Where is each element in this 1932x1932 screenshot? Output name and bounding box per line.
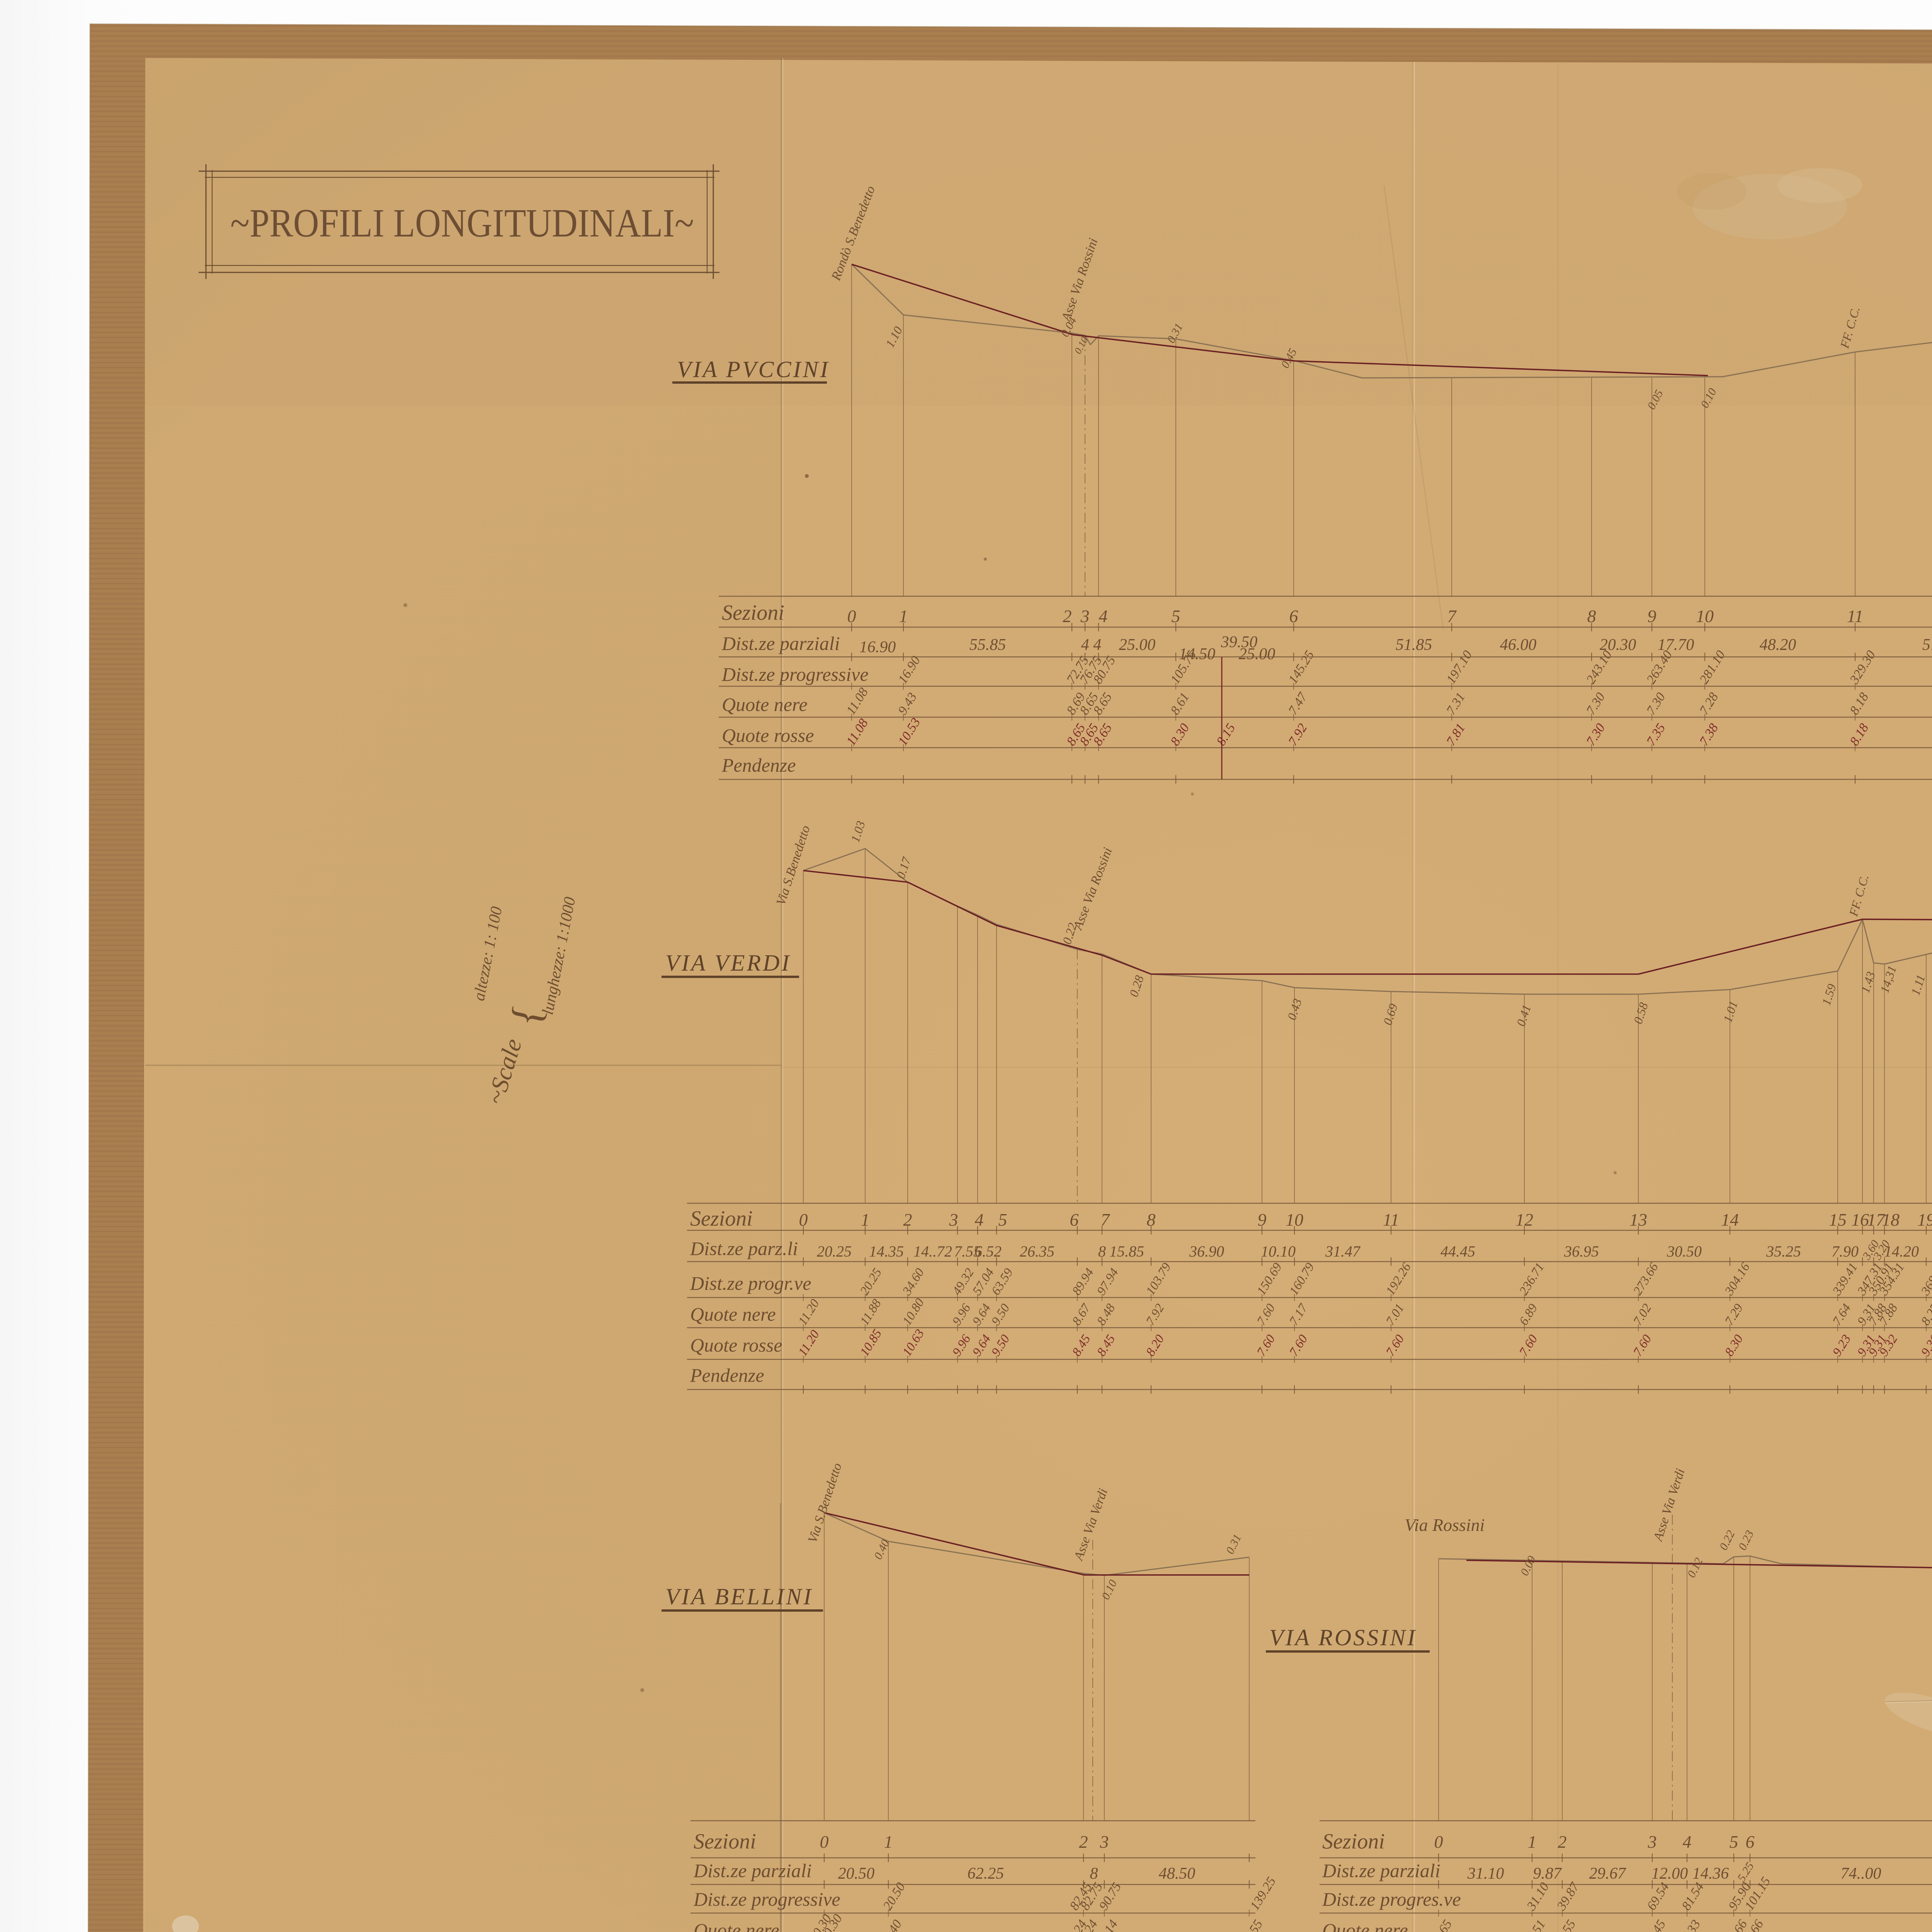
svg-text:Quote nere: Quote nere bbox=[722, 694, 808, 715]
svg-text:VIA BELLINI: VIA BELLINI bbox=[665, 1584, 813, 1609]
svg-text:Sezioni: Sezioni bbox=[722, 601, 784, 625]
svg-text:15: 15 bbox=[1829, 1210, 1847, 1230]
svg-text:4 4: 4 4 bbox=[1081, 636, 1102, 654]
svg-text:8: 8 bbox=[1090, 1865, 1098, 1883]
svg-text:2: 2 bbox=[1063, 606, 1072, 626]
svg-text:15.85: 15.85 bbox=[1109, 1243, 1144, 1260]
svg-text:2: 2 bbox=[1079, 1832, 1088, 1852]
svg-text:8: 8 bbox=[1587, 606, 1596, 626]
svg-text:36.90: 36.90 bbox=[1189, 1243, 1224, 1260]
svg-text:51.85: 51.85 bbox=[1396, 636, 1432, 654]
svg-text:5: 5 bbox=[998, 1210, 1007, 1230]
svg-text:Sezioni: Sezioni bbox=[694, 1830, 756, 1854]
svg-text:25.00: 25.00 bbox=[1119, 636, 1156, 654]
svg-text:Dist.ze progres.ve: Dist.ze progres.ve bbox=[1322, 1888, 1461, 1910]
svg-text:10: 10 bbox=[1286, 1210, 1303, 1230]
svg-text:0: 0 bbox=[847, 606, 856, 626]
svg-text:6.52: 6.52 bbox=[975, 1243, 1002, 1260]
svg-text:14..72: 14..72 bbox=[913, 1243, 952, 1260]
svg-text:35.25: 35.25 bbox=[1766, 1243, 1801, 1260]
svg-text:14: 14 bbox=[1721, 1210, 1739, 1230]
svg-text:12.00: 12.00 bbox=[1651, 1865, 1688, 1883]
svg-text:VIA VERDI: VIA VERDI bbox=[665, 950, 791, 976]
svg-text:VIA PVCCINI: VIA PVCCINI bbox=[677, 357, 830, 382]
svg-text:Pendenze: Pendenze bbox=[690, 1364, 764, 1386]
svg-text:1: 1 bbox=[861, 1210, 870, 1230]
svg-text:55.85: 55.85 bbox=[969, 636, 1006, 654]
svg-text:7.90: 7.90 bbox=[1832, 1243, 1859, 1260]
svg-text:VIA ROSSINI: VIA ROSSINI bbox=[1269, 1625, 1417, 1650]
svg-text:Pendenze: Pendenze bbox=[721, 754, 796, 776]
svg-text:9: 9 bbox=[1258, 1210, 1267, 1230]
svg-text:62.25: 62.25 bbox=[968, 1865, 1004, 1883]
svg-text:4: 4 bbox=[1683, 1832, 1692, 1852]
svg-text:20.50: 20.50 bbox=[838, 1865, 875, 1883]
svg-text:30.50: 30.50 bbox=[1667, 1243, 1702, 1260]
svg-text:6: 6 bbox=[1289, 606, 1298, 626]
svg-text:9: 9 bbox=[1648, 606, 1656, 626]
svg-text:12: 12 bbox=[1515, 1210, 1533, 1230]
svg-text:16.90: 16.90 bbox=[859, 638, 896, 656]
svg-text:Quote nere: Quote nere bbox=[1322, 1919, 1408, 1932]
svg-text:46.00: 46.00 bbox=[1500, 636, 1537, 654]
svg-text:Dist.ze progressive: Dist.ze progressive bbox=[693, 1888, 840, 1910]
svg-text:7: 7 bbox=[1447, 606, 1457, 626]
svg-text:31.10: 31.10 bbox=[1467, 1865, 1504, 1883]
svg-text:0: 0 bbox=[799, 1210, 808, 1230]
svg-text:57.00: 57.00 bbox=[1922, 636, 1932, 654]
svg-text:10: 10 bbox=[1696, 606, 1714, 626]
svg-text:31.47: 31.47 bbox=[1325, 1243, 1361, 1260]
svg-text:13: 13 bbox=[1629, 1210, 1647, 1230]
svg-text:4: 4 bbox=[1099, 606, 1108, 626]
svg-text:6: 6 bbox=[1746, 1832, 1755, 1852]
svg-text:Dist.ze progressive: Dist.ze progressive bbox=[721, 663, 869, 685]
svg-text:74..00: 74..00 bbox=[1841, 1865, 1881, 1883]
svg-text:Dist.ze parziali: Dist.ze parziali bbox=[1322, 1860, 1440, 1881]
svg-text:3: 3 bbox=[1100, 1832, 1109, 1852]
svg-text:3: 3 bbox=[1080, 606, 1090, 626]
svg-text:Dist.ze parziali: Dist.ze parziali bbox=[693, 1860, 812, 1881]
svg-text:4: 4 bbox=[975, 1210, 984, 1230]
svg-text:48.20: 48.20 bbox=[1760, 636, 1796, 654]
svg-text:36.95: 36.95 bbox=[1564, 1243, 1599, 1260]
svg-text:Dist.ze progr.ve: Dist.ze progr.ve bbox=[690, 1272, 811, 1294]
svg-text:10.10: 10.10 bbox=[1261, 1243, 1296, 1260]
svg-text:0: 0 bbox=[820, 1832, 829, 1852]
svg-text:1: 1 bbox=[884, 1832, 893, 1852]
svg-text:19: 19 bbox=[1917, 1210, 1932, 1230]
svg-text:1: 1 bbox=[899, 606, 908, 626]
svg-text:Sezioni: Sezioni bbox=[1322, 1830, 1385, 1854]
svg-text:3: 3 bbox=[1648, 1832, 1657, 1852]
svg-text:0: 0 bbox=[1434, 1832, 1443, 1852]
svg-text:~PROFILI LONGITUDINALI~: ~PROFILI LONGITUDINALI~ bbox=[230, 201, 694, 245]
svg-text:29.67: 29.67 bbox=[1589, 1865, 1627, 1883]
svg-text:5: 5 bbox=[1172, 606, 1180, 626]
svg-text:18: 18 bbox=[1882, 1210, 1900, 1230]
svg-text:7: 7 bbox=[1101, 1210, 1111, 1230]
svg-text:11: 11 bbox=[1383, 1210, 1400, 1230]
svg-text:11: 11 bbox=[1847, 606, 1864, 626]
svg-text:Quote nere: Quote nere bbox=[694, 1919, 779, 1932]
svg-text:25.00: 25.00 bbox=[1239, 645, 1276, 663]
svg-text:14.36: 14.36 bbox=[1692, 1865, 1729, 1883]
svg-text:9.87: 9.87 bbox=[1533, 1865, 1562, 1883]
svg-text:8: 8 bbox=[1147, 1210, 1156, 1230]
svg-text:Dist.ze parziali: Dist.ze parziali bbox=[721, 633, 840, 654]
svg-text:Via Rossini: Via Rossini bbox=[1405, 1515, 1485, 1535]
svg-text:Quote rosse: Quote rosse bbox=[690, 1334, 782, 1356]
svg-text:Quote rosse: Quote rosse bbox=[722, 724, 814, 746]
svg-text:3: 3 bbox=[949, 1210, 958, 1230]
svg-text:8: 8 bbox=[1098, 1243, 1106, 1260]
svg-text:2: 2 bbox=[903, 1210, 912, 1230]
svg-text:6: 6 bbox=[1070, 1210, 1079, 1230]
svg-text:48.50: 48.50 bbox=[1159, 1865, 1196, 1883]
svg-text:Quote nere: Quote nere bbox=[690, 1303, 776, 1325]
svg-text:Sezioni: Sezioni bbox=[690, 1207, 753, 1231]
svg-text:44.45: 44.45 bbox=[1440, 1243, 1475, 1260]
svg-text:20.25: 20.25 bbox=[817, 1243, 852, 1260]
svg-text:14.35: 14.35 bbox=[869, 1243, 904, 1260]
svg-text:16: 16 bbox=[1851, 1210, 1869, 1230]
svg-text:1: 1 bbox=[1528, 1832, 1537, 1852]
svg-text:2: 2 bbox=[1558, 1832, 1567, 1852]
svg-text:Dist.ze parz.li: Dist.ze parz.li bbox=[690, 1238, 798, 1259]
svg-text:5: 5 bbox=[1730, 1832, 1738, 1852]
svg-text:26.35: 26.35 bbox=[1020, 1243, 1054, 1260]
